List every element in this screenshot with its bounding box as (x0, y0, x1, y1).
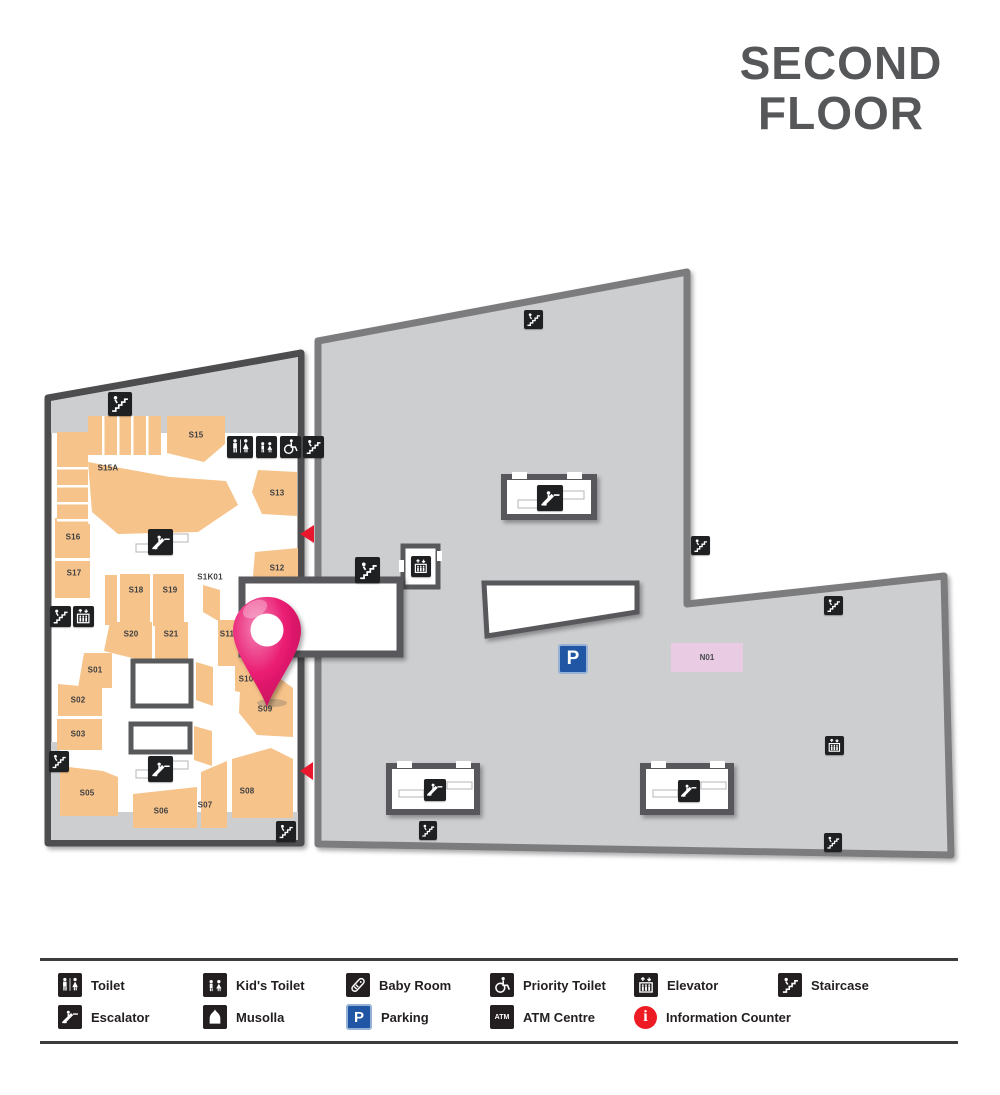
staircase-icon (50, 606, 71, 627)
unit-label[interactable]: S20 (124, 630, 139, 639)
priority-toilet-icon (280, 436, 301, 458)
sky-bridge (242, 580, 400, 654)
legend-item-elevator: Elevator (634, 972, 718, 998)
elevator-icon (73, 606, 94, 627)
escalator-icon (537, 485, 563, 511)
unit-label[interactable]: S11 (220, 630, 234, 639)
unit-label[interactable]: S06 (154, 807, 169, 816)
staircase-icon (303, 436, 324, 458)
toilet-icon (58, 973, 82, 997)
staircase-icon (824, 833, 842, 852)
location-pin[interactable] (228, 589, 306, 709)
unit-label[interactable]: S10 (239, 675, 254, 684)
unit-label[interactable]: S15 (189, 431, 204, 440)
legend-label: Parking (381, 1010, 429, 1025)
staircase-icon (108, 392, 132, 416)
toilet-icon (227, 436, 253, 458)
legend-item-kids-toilet: Kid's Toilet (203, 972, 305, 998)
entrance-arrow-upper (300, 525, 314, 543)
atm-icon: ATM (490, 1005, 514, 1029)
escalator-icon (424, 779, 446, 801)
unit-label: N01 (700, 653, 715, 662)
elevator-icon (634, 973, 658, 997)
parking-icon: P (558, 644, 588, 674)
legend-label: Elevator (667, 978, 718, 993)
legend-item-info: i Information Counter (634, 1004, 791, 1030)
legend-label: Escalator (91, 1010, 150, 1025)
baby-room-icon (346, 973, 370, 997)
parking-icon: P (346, 1004, 372, 1030)
kids-toilet-icon (203, 973, 227, 997)
unit-label[interactable]: S16 (66, 533, 81, 542)
legend-label: Priority Toilet (523, 978, 606, 993)
parking-glyph: P (354, 1009, 364, 1026)
floorplan-page: { "title": { "line1": "SECOND", "line2":… (0, 0, 1000, 1095)
staircase-icon (355, 557, 380, 583)
legend-item-staircase: Staircase (778, 972, 869, 998)
escalator-icon (148, 756, 173, 782)
unit-label[interactable]: S09 (258, 705, 273, 714)
page-title: SECOND FLOOR (726, 38, 956, 138)
unit-label[interactable]: S12 (270, 564, 285, 573)
legend-label: Information Counter (666, 1010, 791, 1025)
staircase-icon (824, 596, 843, 615)
legend-item-baby-room: Baby Room (346, 972, 451, 998)
staircase-icon (778, 973, 802, 997)
legend: Toilet Kid's Toilet Baby Room Priority T… (40, 958, 958, 1044)
legend-label: Baby Room (379, 978, 451, 993)
unit-label[interactable]: S03 (71, 730, 86, 739)
staircase-icon (524, 310, 543, 329)
staircase-icon (691, 536, 710, 555)
escalator-icon (678, 780, 700, 802)
entrance-arrows (300, 525, 314, 780)
unit-label[interactable]: S15A (98, 464, 119, 473)
atrium-void-upper (133, 661, 191, 706)
legend-label: Musolla (236, 1010, 284, 1025)
elevator-icon (825, 736, 844, 755)
unit-label[interactable]: S08 (240, 787, 255, 796)
info-icon: i (634, 1006, 657, 1029)
escalator-icon (58, 1005, 82, 1029)
unit-label[interactable]: S13 (270, 489, 285, 498)
legend-item-parking: P Parking (346, 1004, 429, 1030)
parking-glyph: P (567, 648, 580, 670)
unit-label[interactable]: S01 (88, 666, 103, 675)
unit-label[interactable]: S19 (163, 586, 178, 595)
unit-label[interactable]: S02 (71, 696, 86, 705)
left-wing (48, 353, 301, 843)
musolla-icon (203, 1005, 227, 1029)
legend-label: Toilet (91, 978, 125, 993)
legend-item-priority-toilet: Priority Toilet (490, 972, 606, 998)
unit-label[interactable]: S17 (67, 569, 82, 578)
entrance-arrow-lower (300, 762, 313, 780)
atrium-void-lower (131, 724, 190, 752)
staircase-icon (276, 821, 296, 842)
unit-label[interactable]: S18 (129, 586, 144, 595)
staircase-icon (419, 821, 437, 840)
kids-toilet-icon (256, 436, 277, 458)
staircase-icon (49, 751, 69, 772)
legend-label: ATM Centre (523, 1010, 595, 1025)
page-title-line1: SECOND (726, 38, 956, 88)
atm-glyph: ATM (495, 1014, 510, 1021)
info-glyph: i (643, 1008, 647, 1026)
page-title-line2: FLOOR (726, 88, 956, 138)
priority-toilet-icon (490, 973, 514, 997)
unit-label[interactable]: S21 (164, 630, 179, 639)
unit-n01[interactable]: N01 (671, 643, 743, 672)
escalator-icon (148, 529, 173, 555)
corridor-cutout (484, 583, 637, 636)
legend-item-atm: ATM ATM Centre (490, 1004, 595, 1030)
legend-label: Staircase (811, 978, 869, 993)
legend-label: Kid's Toilet (236, 978, 305, 993)
unit-label[interactable]: S05 (80, 789, 95, 798)
elevator-icon (411, 556, 431, 577)
legend-item-toilet: Toilet (58, 972, 125, 998)
legend-item-escalator: Escalator (58, 1004, 150, 1030)
legend-item-musolla: Musolla (203, 1004, 284, 1030)
unit-label[interactable]: S1K01 (197, 573, 222, 582)
unit-label[interactable]: S07 (198, 801, 213, 810)
